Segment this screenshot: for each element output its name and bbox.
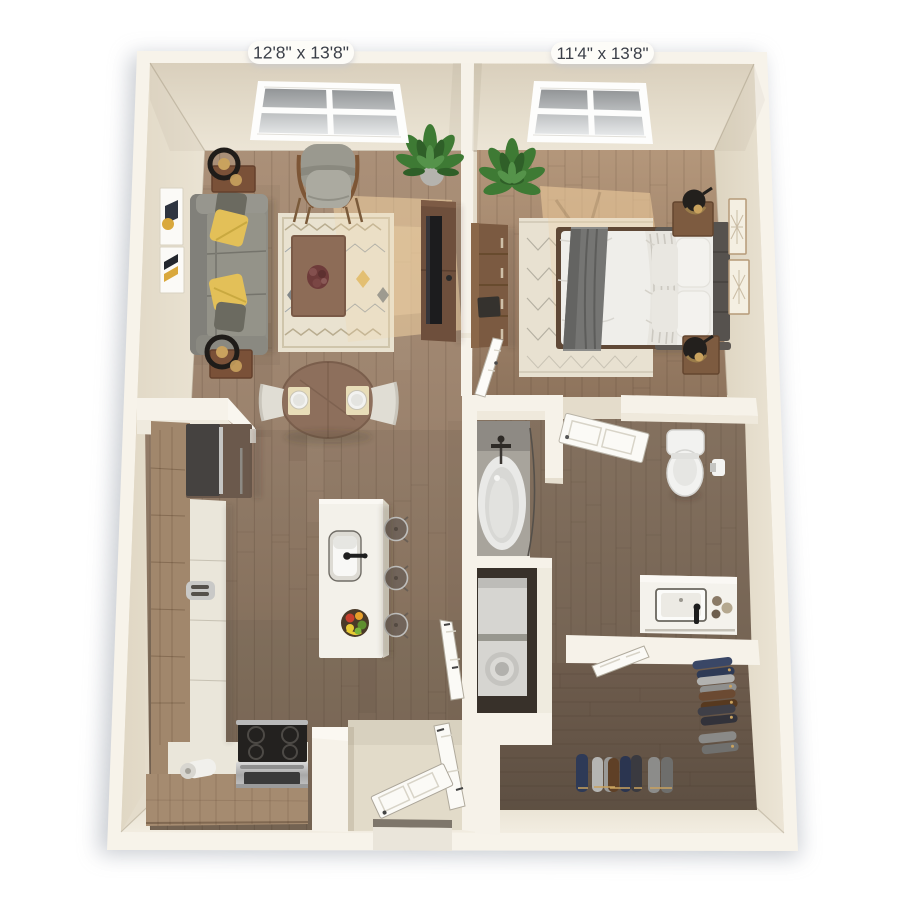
svg-text:11'4" x 13'8": 11'4" x 13'8" bbox=[557, 44, 649, 63]
svg-text:12'8" x 13'8": 12'8" x 13'8" bbox=[253, 43, 349, 63]
